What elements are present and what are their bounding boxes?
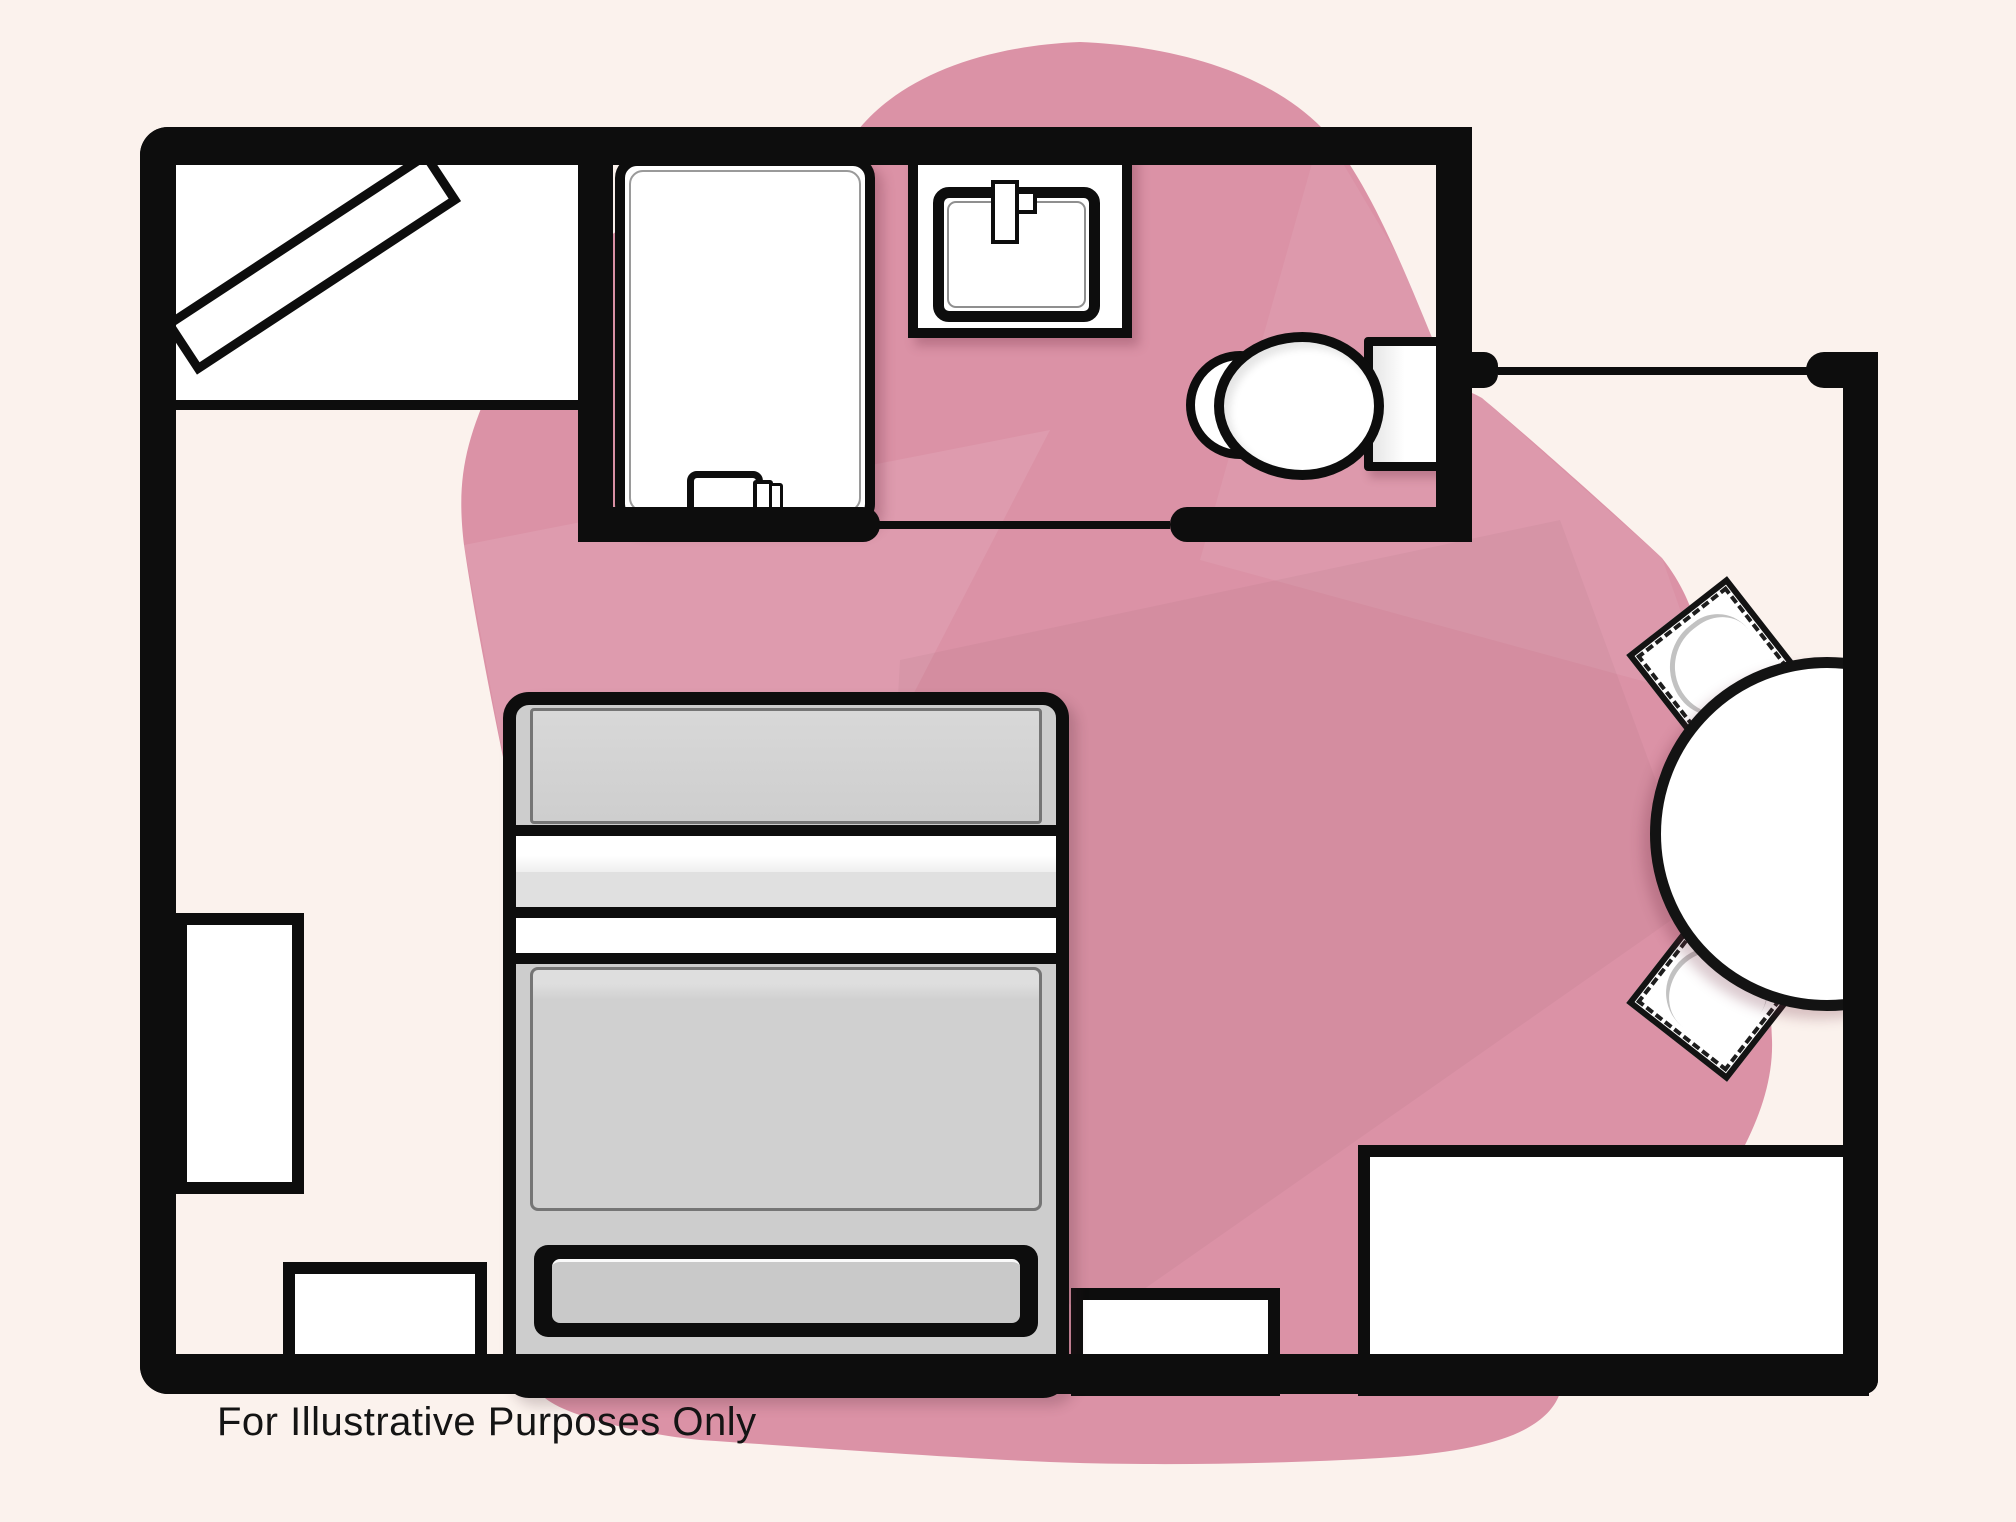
- entry-door-jamb: [1472, 352, 1498, 388]
- faucet-handle: [1015, 190, 1037, 214]
- wall-left: [140, 127, 176, 1394]
- dining-table-clip: [0, 0, 1844, 1522]
- closet-wall-right: [578, 127, 613, 542]
- bathroom-wall-bottom-right: [1170, 507, 1472, 542]
- bathroom-wall-bottom-left: [578, 507, 880, 542]
- window-line: [1498, 367, 1808, 375]
- dining-table: [1650, 657, 1844, 1011]
- bathroom-wall-right: [1436, 127, 1472, 542]
- wall-right-top-stub: [1806, 352, 1878, 388]
- closet-wall-bottom: [176, 400, 580, 410]
- bathroom-door-threshold: [878, 521, 1170, 529]
- wall-top: [140, 127, 1472, 165]
- wall-bottom: [140, 1354, 1878, 1394]
- wall-right: [1843, 352, 1878, 1394]
- disclaimer-text: For Illustrative Purposes Only: [217, 1400, 757, 1444]
- floor-plan-canvas: For Illustrative Purposes Only: [0, 0, 2016, 1522]
